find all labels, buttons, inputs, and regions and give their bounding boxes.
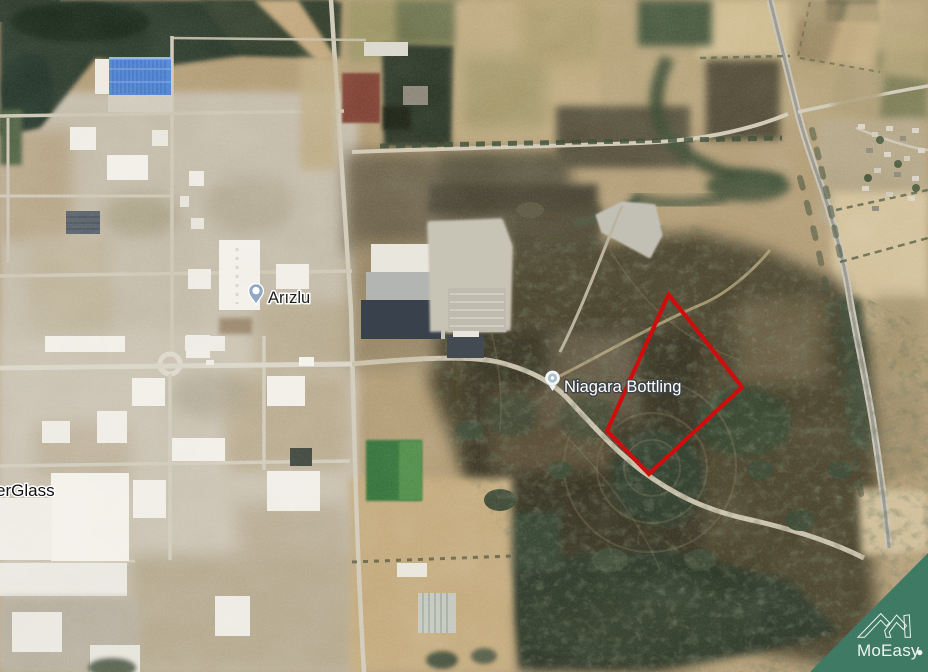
- svg-text:Arızlu: Arızlu: [268, 289, 310, 307]
- svg-text:MoEasy: MoEasy: [857, 641, 920, 660]
- svg-text:Niagara Bottling: Niagara Bottling: [564, 378, 681, 396]
- svg-text:erGlass: erGlass: [0, 481, 55, 500]
